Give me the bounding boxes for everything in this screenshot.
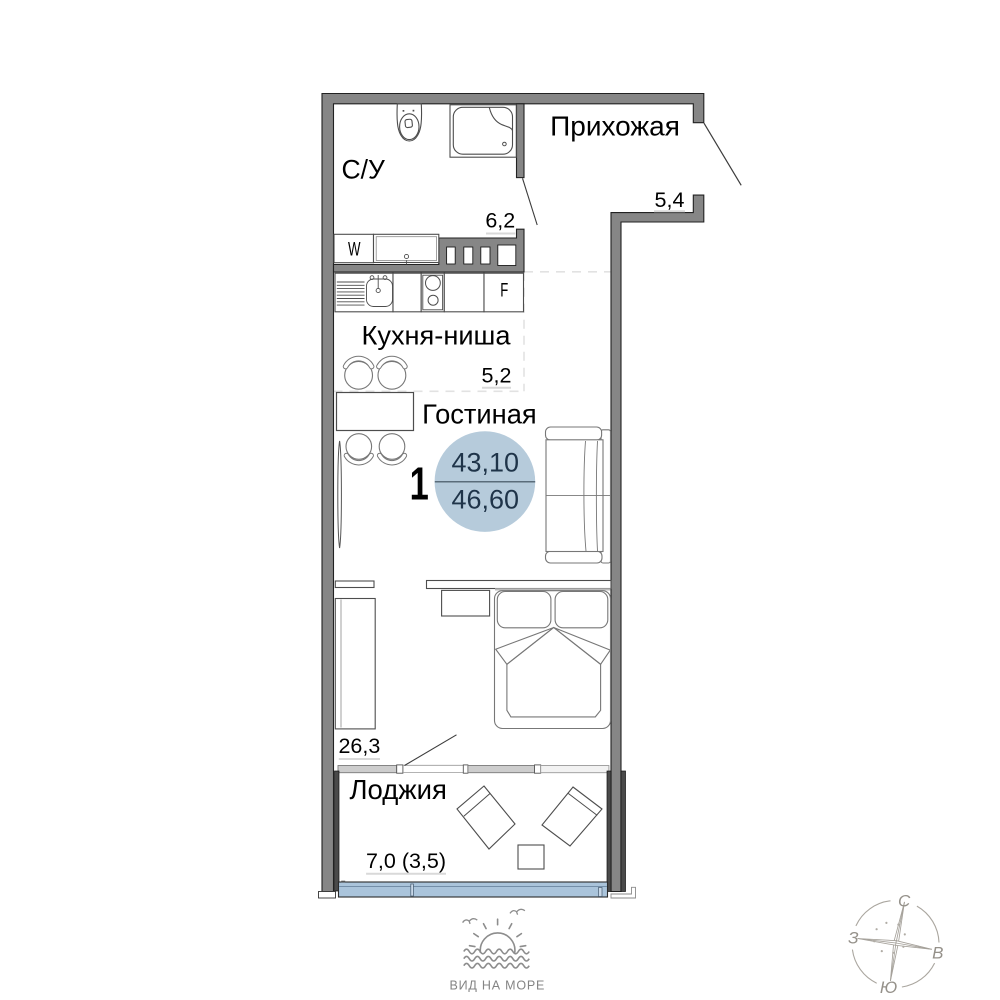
svg-text:W: W — [348, 239, 361, 261]
svg-text:26,3: 26,3 — [338, 734, 380, 758]
svg-text:З: З — [848, 929, 859, 948]
svg-text:ВИД НА МОРЕ: ВИД НА МОРЕ — [449, 979, 545, 993]
svg-text:5,4: 5,4 — [655, 188, 685, 212]
svg-text:Кухня-ниша: Кухня-ниша — [362, 320, 512, 351]
svg-text:7,0 (3,5): 7,0 (3,5) — [366, 849, 446, 873]
svg-text:Лоджия: Лоджия — [349, 774, 446, 805]
svg-text:С: С — [898, 891, 911, 910]
svg-text:6,2: 6,2 — [485, 209, 515, 233]
svg-text:Гостиная: Гостиная — [422, 399, 537, 430]
svg-text:Прихожая: Прихожая — [550, 110, 680, 141]
svg-text:F: F — [500, 280, 508, 302]
svg-text:Ю: Ю — [880, 978, 897, 997]
svg-text:С/У: С/У — [342, 155, 386, 185]
svg-text:5,2: 5,2 — [482, 364, 512, 388]
svg-text:46,60: 46,60 — [452, 485, 520, 515]
svg-text:43,10: 43,10 — [452, 447, 520, 477]
svg-text:1: 1 — [410, 458, 429, 510]
svg-text:В: В — [932, 944, 943, 963]
